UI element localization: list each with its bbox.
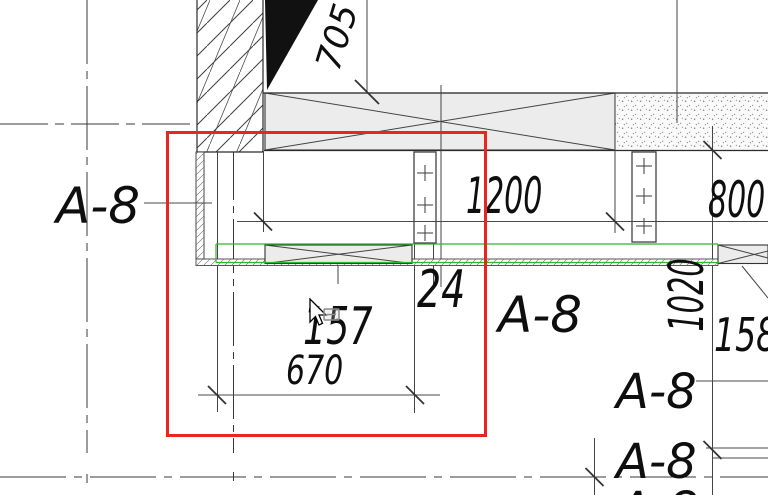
axis-label-a8-middle[interactable]: A-8 — [498, 290, 582, 340]
dimension-800[interactable]: 800 — [708, 175, 765, 225]
dimension-158-clipped[interactable]: 158 — [714, 312, 768, 358]
stud-post-2[interactable] — [632, 152, 656, 242]
axis-label-a8-bottom-clipped[interactable]: A-8 — [618, 486, 699, 495]
axis-label-a8-right-2[interactable]: A-8 — [616, 438, 697, 486]
masonry-wall-section[interactable] — [196, 0, 264, 152]
axis-label-a8-left[interactable]: A-8 — [56, 181, 140, 231]
axis-label-a8-right-1[interactable]: A-8 — [616, 368, 697, 416]
selection-rectangle — [166, 131, 487, 437]
snap-indicator-icon — [324, 309, 339, 320]
timber-beam-right[interactable] — [718, 245, 768, 298]
cad-drawing-canvas[interactable]: A-8 A-8 A-8 A-8 A-8 705 1200 800 157 670… — [0, 0, 768, 495]
black-fill-triangle[interactable] — [265, 0, 318, 90]
concrete-screed-stipple[interactable] — [616, 94, 768, 150]
mouse-cursor-icon — [303, 298, 347, 334]
dimension-1020[interactable]: 1020 — [663, 258, 711, 331]
